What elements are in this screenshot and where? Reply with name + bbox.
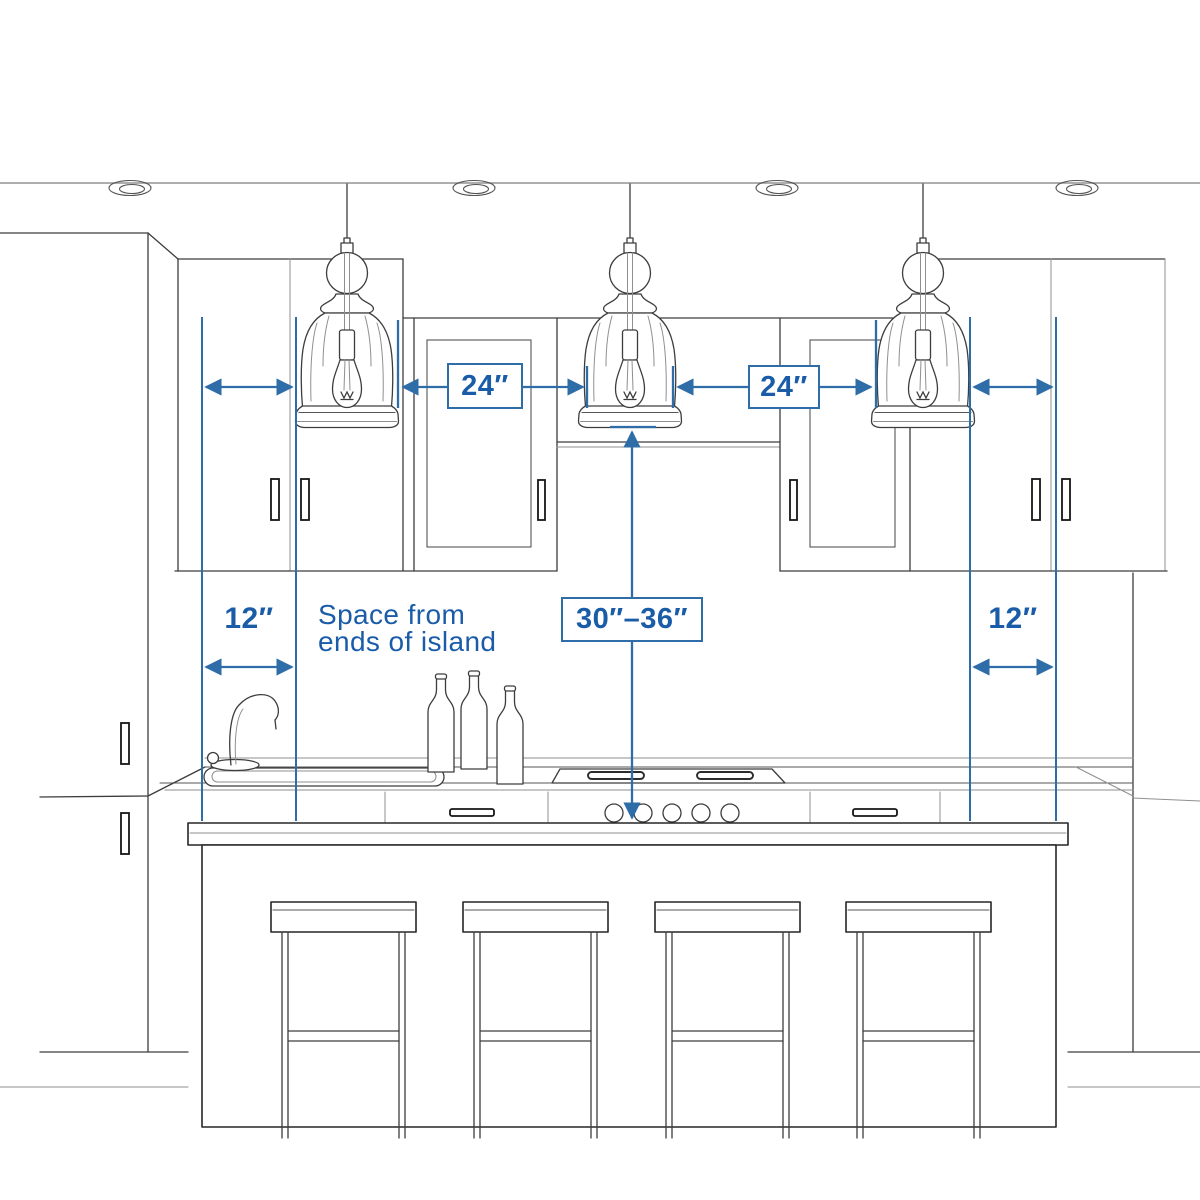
cabinet-handle bbox=[790, 480, 797, 520]
drawer-handle bbox=[853, 809, 897, 816]
ceiling bbox=[0, 181, 1200, 196]
cabinet-handle bbox=[538, 480, 545, 520]
cabinet-handle bbox=[271, 479, 279, 520]
cabinet-handle bbox=[121, 813, 129, 854]
dimension-label-24-left: 24″ bbox=[447, 363, 523, 409]
wine-bottles bbox=[428, 671, 523, 784]
cooktop-knobs bbox=[605, 804, 739, 822]
kitchen-island bbox=[188, 823, 1068, 1127]
faucet bbox=[208, 695, 279, 771]
dimension-label-24-right: 24″ bbox=[748, 365, 820, 409]
caption-line-2: ends of island bbox=[318, 628, 496, 655]
left-wall-cabinet bbox=[0, 233, 178, 1052]
kitchen-pendant-spacing-diagram: 24″ 24″ 30″–36″ 12″ 12″ Space from ends … bbox=[0, 0, 1200, 1200]
caption-line-1: Space from bbox=[318, 601, 496, 628]
cabinet-handle bbox=[301, 479, 309, 520]
dimension-label-12-right: 12″ bbox=[965, 602, 1061, 636]
range-hood-cabinet bbox=[557, 442, 780, 447]
drawer-handle bbox=[450, 809, 494, 816]
cooktop bbox=[552, 769, 785, 822]
pendant-light-1 bbox=[296, 184, 399, 428]
dimension-label-height-range: 30″–36″ bbox=[561, 597, 703, 642]
dimension-label-12-left: 12″ bbox=[201, 602, 297, 636]
cabinet-handle bbox=[121, 723, 129, 764]
cabinet-handle bbox=[1062, 479, 1070, 520]
pendant-light-2 bbox=[579, 184, 682, 428]
pendant-light-3 bbox=[872, 184, 975, 428]
cabinet-handle bbox=[1032, 479, 1040, 520]
caption-space-from-island: Space from ends of island bbox=[318, 601, 496, 655]
